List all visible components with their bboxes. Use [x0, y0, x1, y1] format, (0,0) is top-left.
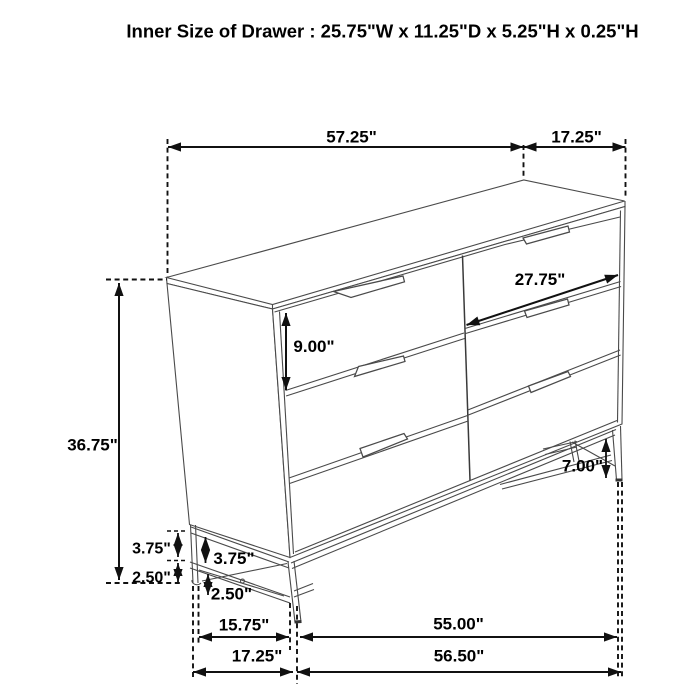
svg-text:17.25": 17.25" — [551, 128, 602, 147]
svg-text:2.50": 2.50" — [132, 570, 171, 587]
svg-text:17.25": 17.25" — [232, 647, 283, 666]
svg-text:2.50": 2.50" — [211, 585, 252, 604]
svg-text:3.75": 3.75" — [132, 541, 171, 558]
svg-text:15.75": 15.75" — [219, 616, 270, 635]
svg-text:9.00": 9.00" — [293, 337, 334, 356]
svg-text:57.25": 57.25" — [326, 128, 377, 147]
svg-text:55.00": 55.00" — [433, 615, 484, 634]
svg-text:36.75": 36.75" — [67, 436, 118, 455]
svg-text:27.75": 27.75" — [515, 270, 566, 289]
svg-text:3.75": 3.75" — [213, 549, 254, 568]
svg-text:56.50": 56.50" — [434, 647, 485, 666]
svg-text:Inner Size of Drawer : 25.75"W: Inner Size of Drawer : 25.75"W x 11.25"D… — [126, 21, 638, 42]
svg-text:7.00": 7.00" — [562, 457, 603, 476]
